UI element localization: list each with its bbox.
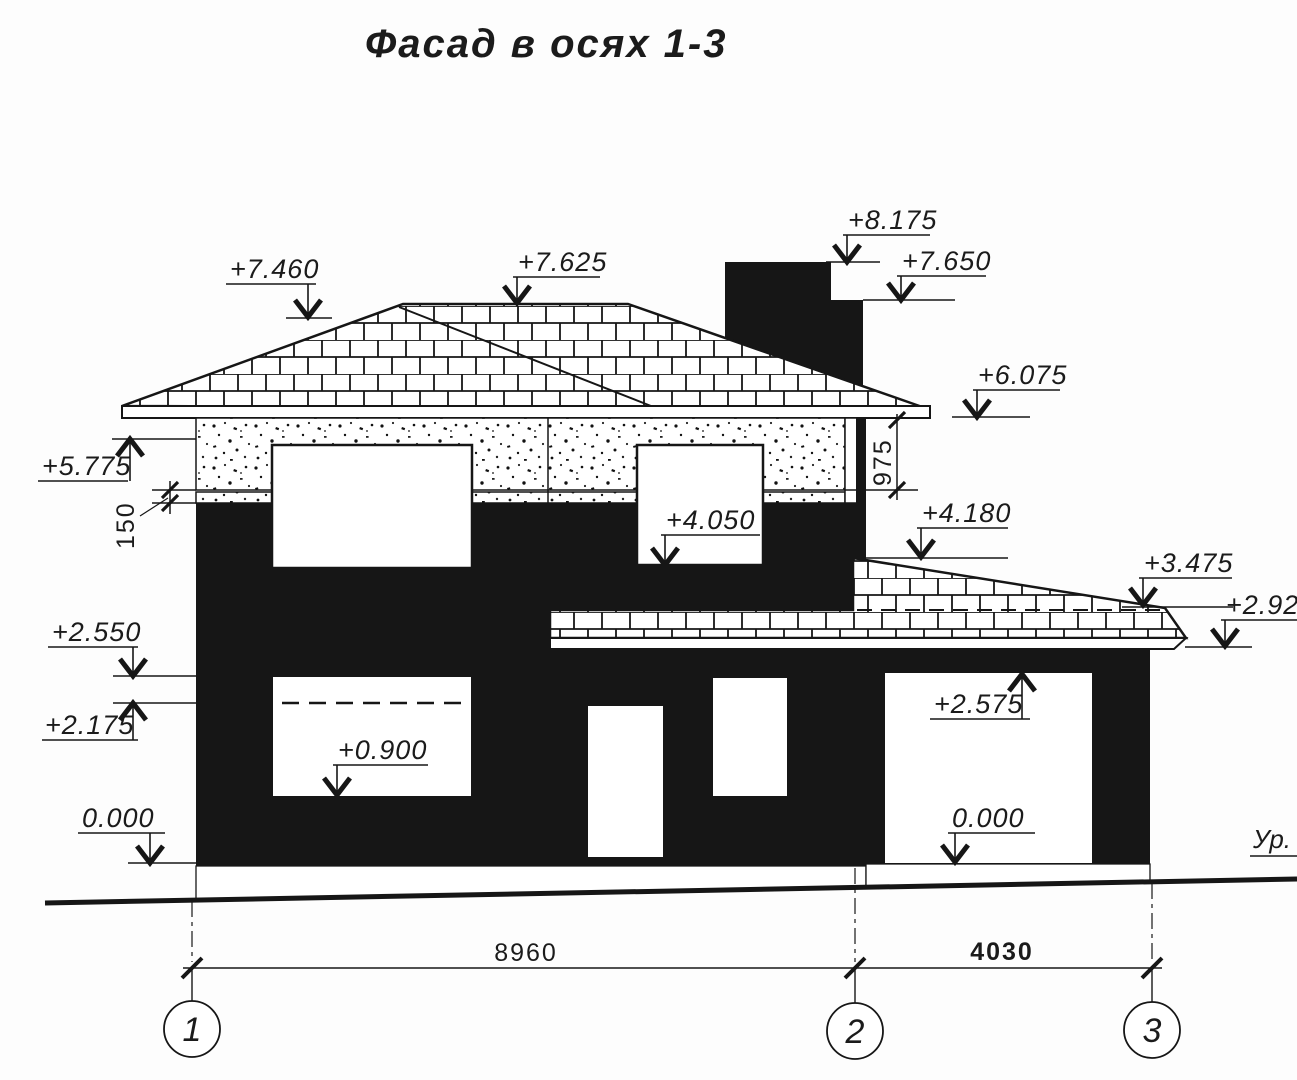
mark-label: +7.460 (230, 254, 319, 284)
ground-label-text: Ур. з (1252, 824, 1297, 854)
mark-label: +7.650 (902, 246, 991, 276)
dimension-150: 150 (112, 481, 196, 549)
elevation-mark-7650: +7.650 (863, 246, 991, 300)
window-2f-left (272, 445, 472, 568)
mark-label: +7.625 (518, 247, 607, 277)
elevation-mark-2175: +2.175 (42, 703, 196, 740)
dim-label: 975 (869, 438, 897, 486)
mark-label: +2.550 (52, 617, 141, 647)
mark-label: +2.925 (1226, 590, 1297, 620)
mark-label: +2.175 (45, 710, 134, 740)
mark-label: +0.900 (338, 735, 427, 765)
mark-label: +4.050 (666, 505, 755, 535)
dim-span-2-3: 4030 (970, 938, 1034, 966)
elevation-mark-3475: +3.475 (1122, 548, 1233, 607)
elevation-mark-7625: +7.625 (504, 247, 607, 303)
elevation-mark-2925: +2.925 (1185, 590, 1297, 647)
elevation-mark-6075: +6.075 (952, 360, 1067, 417)
mark-label: +2.575 (934, 689, 1023, 719)
axis-bubble-2: 2 (827, 968, 883, 1059)
main-roof-eaves-board (122, 406, 930, 418)
ground-level-label: Ур. з (1250, 824, 1297, 856)
mark-label: 0.000 (952, 803, 1025, 833)
mark-label: +3.475 (1144, 548, 1233, 578)
dim-span-1-2: 8960 (494, 939, 558, 967)
dim-label: 150 (112, 501, 140, 549)
facade-drawing-page: Фасад в осях 1-3 + (0, 0, 1297, 1080)
window-1f-stair (588, 706, 663, 857)
elevation-mark-4180: +4.180 (858, 498, 1011, 558)
axis-number: 1 (183, 1011, 202, 1049)
garage-roof-fascia (550, 638, 1186, 649)
facade-elevation-drawing: Фасад в осях 1-3 + (0, 0, 1297, 1080)
axis-number: 2 (845, 1013, 865, 1051)
mark-label: +6.075 (978, 360, 1067, 390)
elevation-mark-7460: +7.460 (226, 254, 332, 318)
axis-number: 3 (1143, 1012, 1162, 1050)
mark-label: +4.180 (922, 498, 1011, 528)
axis-bubble-1: 1 (164, 968, 220, 1057)
mark-label: +8.175 (848, 205, 937, 235)
elevation-mark-2550: +2.550 (48, 617, 196, 676)
mark-label: 0.000 (82, 803, 155, 833)
axis-bubble-3: 3 (1124, 968, 1180, 1058)
elevation-mark-5775: +5.775 (38, 439, 196, 481)
drawing-title: Фасад в осях 1-3 (365, 22, 728, 66)
elevation-mark-zero-left: 0.000 (78, 803, 196, 863)
plinth (196, 864, 1150, 900)
window-1f-center (713, 678, 787, 796)
